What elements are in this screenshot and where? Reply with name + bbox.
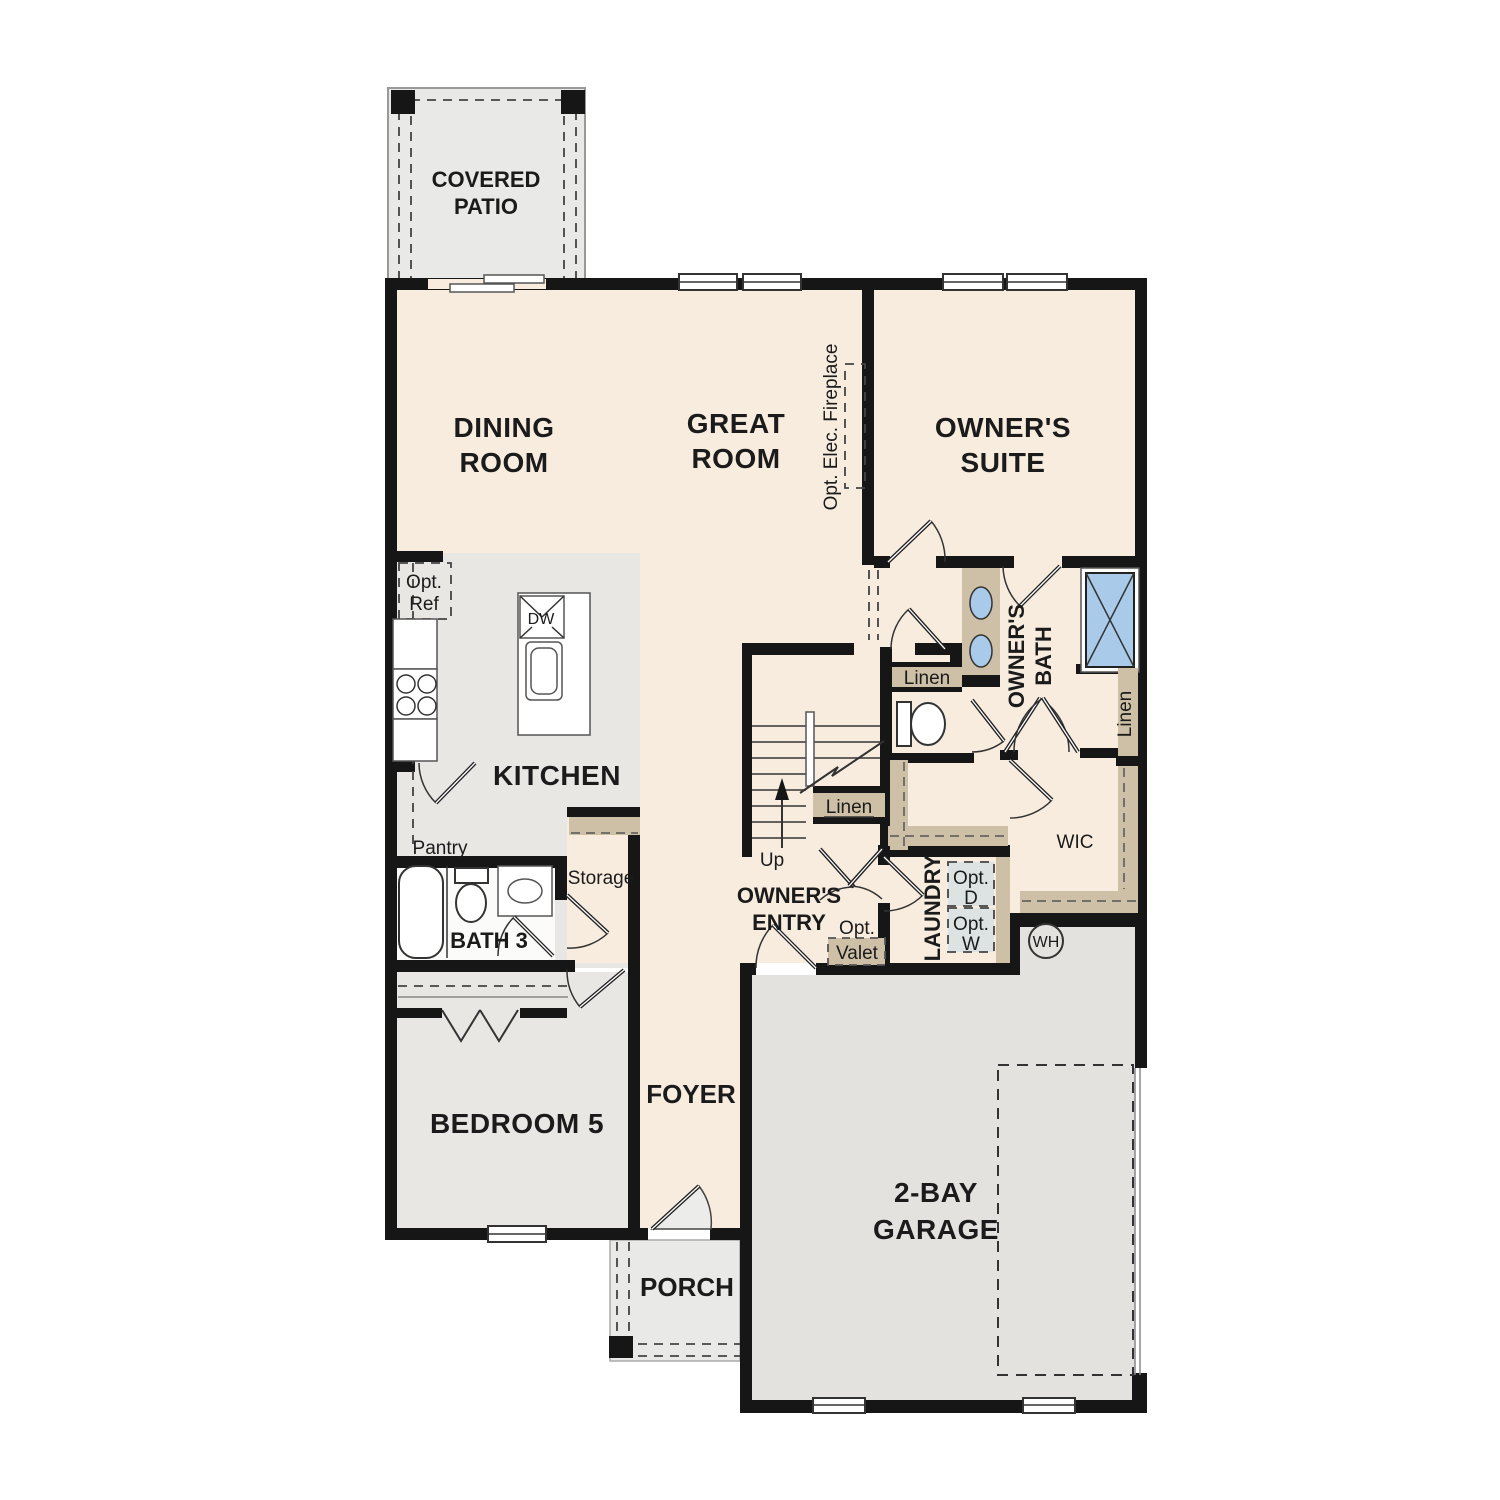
- patio-post: [561, 90, 585, 114]
- owners-suite-label: OWNER'S: [935, 412, 1071, 443]
- wic-shelf: [1118, 766, 1138, 891]
- bedroom5-label: BEDROOM 5: [430, 1108, 604, 1139]
- water-heater-label: WH: [1033, 934, 1060, 951]
- bathtub: [399, 866, 443, 958]
- stair-railing: [806, 712, 814, 786]
- opt-fireplace-label: Opt. Elec. Fireplace: [821, 344, 842, 511]
- linen-label: Linen: [1115, 691, 1136, 738]
- sink: [508, 879, 542, 903]
- pantry-label: Pantry: [413, 838, 468, 859]
- window: [743, 274, 801, 290]
- bath3-label: BATH 3: [450, 928, 528, 953]
- foyer-label: FOYER: [646, 1079, 736, 1109]
- opt-washer-label: W: [962, 934, 980, 955]
- toilet: [911, 703, 945, 745]
- window: [943, 274, 1003, 290]
- garage-label: GARAGE: [873, 1214, 999, 1245]
- floor-plan-page: COVERED PATIO DINING ROOM GREAT ROOM OWN…: [0, 0, 1500, 1500]
- linen-label: Linen: [904, 668, 951, 689]
- wic-label: WIC: [1057, 832, 1094, 853]
- porch-post: [609, 1336, 633, 1358]
- kitchen-counter: [393, 719, 437, 761]
- laundry-label: LAUNDRY: [920, 854, 945, 961]
- opt-washer-label: Opt.: [953, 914, 989, 935]
- opt-ref-label: Opt.: [406, 572, 442, 593]
- garage-floor: [752, 927, 1135, 1400]
- vanity-sink: [970, 587, 992, 619]
- dishwasher-label: DW: [528, 611, 556, 628]
- owners-entry-label: ENTRY: [752, 910, 826, 935]
- storage-label: Storage: [568, 868, 635, 889]
- garage-window: [1023, 1398, 1075, 1413]
- opt-ref-label: Ref: [409, 594, 439, 615]
- great-room-label: ROOM: [691, 443, 780, 474]
- window: [1007, 274, 1067, 290]
- covered-patio-label: PATIO: [454, 194, 518, 219]
- opt-dryer-label: D: [964, 888, 978, 909]
- floor-plan: COVERED PATIO DINING ROOM GREAT ROOM OWN…: [0, 0, 1500, 1500]
- window: [679, 274, 737, 290]
- opt-valet-label: Valet: [836, 943, 879, 964]
- garage-label: 2-BAY: [894, 1177, 978, 1208]
- garage-window: [813, 1398, 865, 1413]
- covered-patio-label: COVERED: [432, 167, 541, 192]
- owners-suite-label: SUITE: [961, 447, 1046, 478]
- toilet-tank: [455, 868, 488, 883]
- laundry-cabinet: [996, 857, 1010, 963]
- dining-room-label: DINING: [454, 412, 555, 443]
- vanity-sink: [970, 635, 992, 667]
- wic-shelf: [1020, 891, 1138, 913]
- opt-dryer-label: Opt.: [953, 868, 989, 889]
- great-room-label: GREAT: [687, 408, 785, 439]
- linen-label: Linen: [826, 797, 873, 818]
- dining-room-label: ROOM: [459, 447, 548, 478]
- owners-bath-label: BATH: [1031, 626, 1056, 685]
- owners-entry-label: OWNER'S: [737, 883, 841, 908]
- kitchen-label: KITCHEN: [493, 760, 621, 791]
- up-label: Up: [760, 850, 784, 871]
- porch-label: PORCH: [640, 1272, 734, 1302]
- window: [488, 1226, 546, 1242]
- owners-bath-label: OWNER'S: [1004, 604, 1029, 708]
- toilet-tank: [897, 702, 911, 746]
- kitchen-counter: [393, 619, 437, 669]
- opt-valet-label: Opt.: [839, 918, 875, 939]
- patio-post: [391, 90, 415, 114]
- toilet: [456, 884, 486, 922]
